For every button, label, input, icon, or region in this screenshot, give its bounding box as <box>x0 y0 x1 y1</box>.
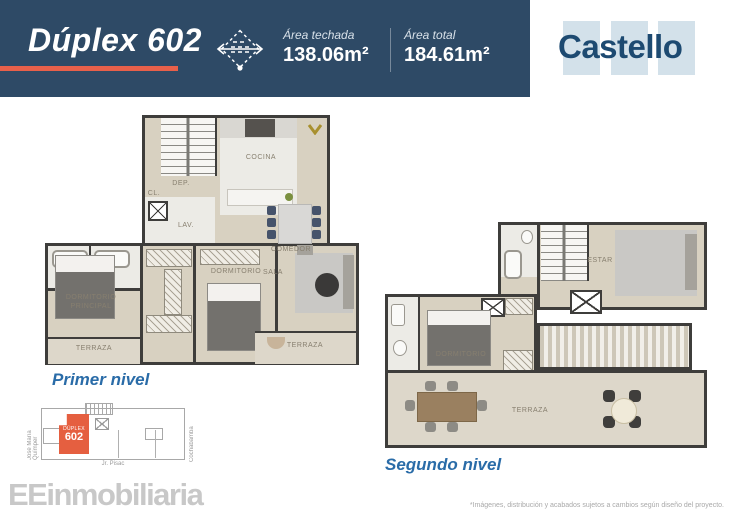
location-keyplan: DÚPLEX 602 José María Químper Cochabamba… <box>25 402 200 470</box>
unit-divider <box>155 430 156 458</box>
chair <box>405 400 415 411</box>
chair <box>447 422 458 432</box>
disclaimer-text: *Imágenes, distribución y acabados sujet… <box>470 502 724 509</box>
wood-deck <box>537 323 692 370</box>
page-title: Dúplex 602 <box>28 22 202 59</box>
sink <box>391 304 405 326</box>
chair <box>447 381 458 391</box>
brand-name: Castello <box>558 28 682 66</box>
room-label-dormitorio: DORMITORIO <box>195 267 277 276</box>
chair <box>312 230 321 239</box>
wall <box>537 225 540 307</box>
wardrobe <box>505 298 533 315</box>
room-label-comedor: COMEDOR <box>259 245 323 254</box>
area-total-stat: Área total 184.61m² <box>404 28 490 67</box>
wardrobe <box>146 249 192 267</box>
title-underline <box>0 66 178 71</box>
room-label-cl: CL. <box>143 189 165 198</box>
room-label-dormitorio-principal: DORMITORIO PRINCIPAL <box>59 293 123 311</box>
logo-prefix: EE <box>8 477 46 512</box>
wall <box>193 246 196 362</box>
room-label-dormitorio: DORMITORIO <box>419 350 503 359</box>
street-label-right: Cochabamba <box>189 414 195 462</box>
wall <box>275 246 278 331</box>
lounge-chair <box>603 390 615 402</box>
round-table <box>611 398 637 424</box>
room-label-lav: LAV. <box>169 221 203 230</box>
wardrobe <box>164 269 182 315</box>
room-label-terraza-left: TERRAZA <box>48 344 140 353</box>
stairs <box>541 225 589 281</box>
toilet <box>393 340 407 356</box>
unit-number: 602 <box>59 432 89 443</box>
first-level-caption: Primer nivel <box>52 370 149 390</box>
wardrobe <box>503 350 533 372</box>
dimension-diamond-icon <box>213 22 267 81</box>
second-level-caption: Segundo nivel <box>385 455 501 475</box>
chair <box>425 422 436 432</box>
elevator-box <box>570 290 602 314</box>
plant-icon <box>285 193 293 201</box>
wardrobe <box>200 249 260 265</box>
second-level-floorplan: ESTAR DORMITORIO TERRAZA <box>385 222 712 450</box>
unit-divider <box>118 430 119 458</box>
unit-outline <box>43 428 61 444</box>
room-label-dep: DEP. <box>161 179 201 188</box>
chair <box>267 218 276 227</box>
chair <box>477 400 487 411</box>
wardrobe <box>146 315 192 333</box>
chair <box>312 206 321 215</box>
entry-arrow-icon <box>307 122 323 140</box>
street-label-bottom: Jr. Pisac <box>83 461 143 467</box>
wall <box>140 246 143 362</box>
sofa <box>343 255 354 309</box>
toilet <box>521 230 533 244</box>
dining-table <box>278 204 312 244</box>
outdoor-dining-table <box>417 392 477 422</box>
logo-rest: inmobiliaria <box>46 477 202 512</box>
stove <box>245 119 275 137</box>
chair <box>267 206 276 215</box>
street-label-left: José María Químper <box>27 410 39 460</box>
area-total-value: 184.61m² <box>404 44 490 67</box>
elevator-symbol <box>95 418 109 430</box>
flyer-canvas: Dúplex 602 Área techada 138.06m² Área to… <box>0 0 730 516</box>
first-level-floorplan: COCINA DEP. CL. LAV. COMEDOR SALA DORMIT… <box>45 115 359 365</box>
castello-logo: Castello <box>530 0 730 97</box>
stat-divider <box>390 28 391 72</box>
room-label-estar: ESTAR <box>575 256 625 265</box>
room-label-terraza-right: TERRAZA <box>255 341 355 350</box>
unit-outline <box>145 428 163 440</box>
area-techada-value: 138.06m² <box>283 44 369 67</box>
shower <box>504 250 522 279</box>
sofa <box>685 234 697 290</box>
chair <box>425 381 436 391</box>
stairs-symbol <box>85 403 113 415</box>
stairs <box>161 118 217 176</box>
area-techada-stat: Área techada 138.06m² <box>283 28 369 67</box>
bed <box>207 283 261 351</box>
coffee-table <box>315 273 339 297</box>
chair <box>312 218 321 227</box>
area-total-label: Área total <box>404 28 490 42</box>
eeinmobiliaria-logo: EEinmobiliaria <box>8 477 202 513</box>
chair <box>267 230 276 239</box>
area-techada-label: Área techada <box>283 28 369 42</box>
room-label-terraza: TERRAZA <box>500 406 560 415</box>
room-label-cocina: COCINA <box>231 153 291 162</box>
washer-box <box>148 201 168 221</box>
